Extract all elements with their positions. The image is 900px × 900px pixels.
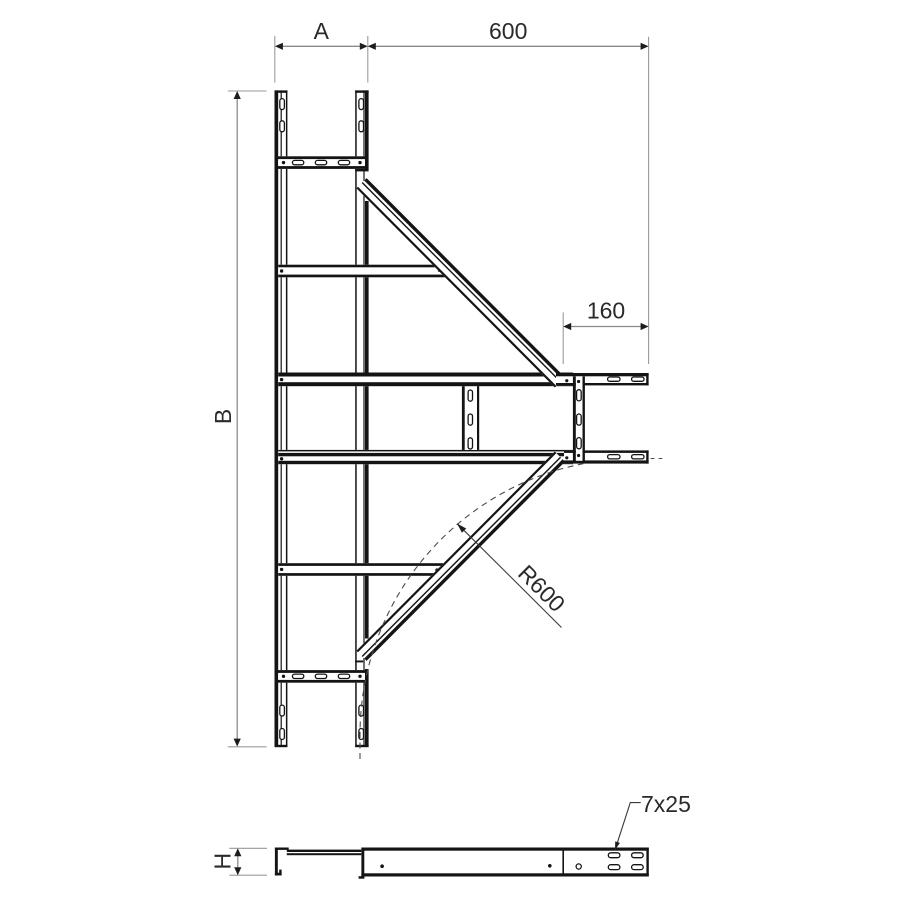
svg-text:B: B: [210, 409, 236, 424]
svg-text:600: 600: [489, 18, 527, 44]
svg-text:A: A: [314, 18, 330, 44]
svg-text:160: 160: [587, 298, 625, 324]
svg-text:7x25: 7x25: [641, 791, 691, 817]
svg-text:H: H: [210, 853, 236, 870]
